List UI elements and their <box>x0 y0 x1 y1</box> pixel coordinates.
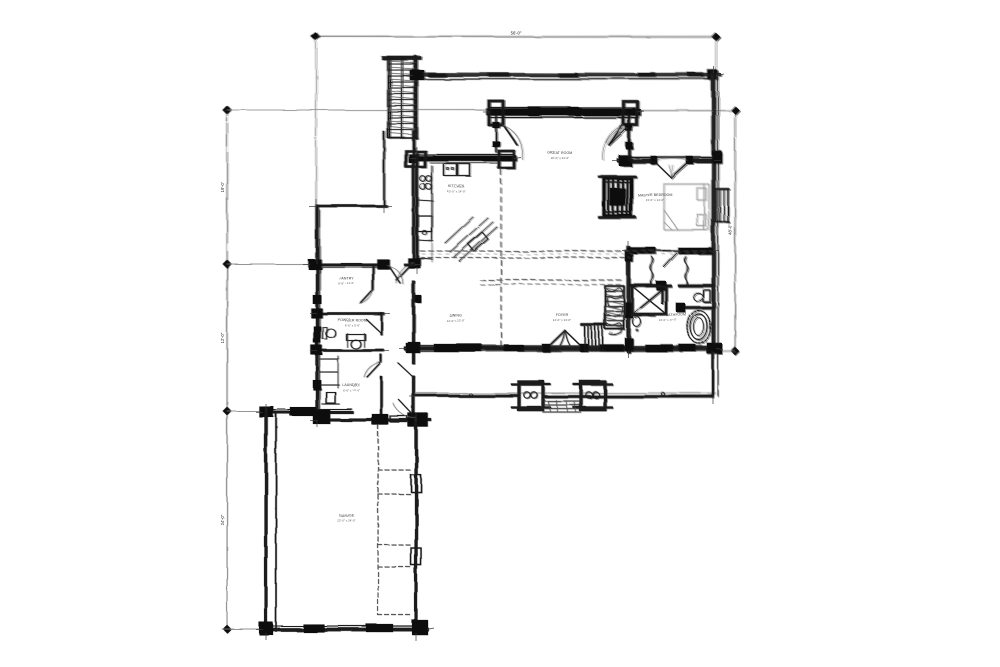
svg-text:MASTER BEDROOM: MASTER BEDROOM <box>637 193 672 197</box>
svg-text:DINING: DINING <box>450 314 463 318</box>
svg-text:13'-0" x 14'-0": 13'-0" x 14'-0" <box>646 198 665 202</box>
svg-text:POWDER ROOM: POWDER ROOM <box>338 318 367 322</box>
svg-text:14'-0" x 13'-0": 14'-0" x 13'-0" <box>447 319 466 323</box>
svg-text:12'-0": 12'-0" <box>220 332 225 343</box>
svg-text:13'-0" x 14'-0": 13'-0" x 14'-0" <box>447 189 466 193</box>
svg-text:13'-0" x 10'-0": 13'-0" x 10'-0" <box>659 318 678 322</box>
svg-text:KITCHEN: KITCHEN <box>448 184 464 188</box>
svg-text:4R: 4R <box>609 331 613 335</box>
svg-text:FOYER: FOYER <box>556 313 569 317</box>
svg-text:LAUNDRY: LAUNDRY <box>342 383 360 387</box>
svg-text:A/C: A/C <box>493 283 498 287</box>
svg-text:20'-0" x 24'-0": 20'-0" x 24'-0" <box>551 156 570 160</box>
svg-text:24'-0": 24'-0" <box>220 514 225 525</box>
svg-text:56'-0": 56'-0" <box>511 31 522 36</box>
svg-text:19'-0": 19'-0" <box>220 181 225 192</box>
svg-text:6'-6" x 5'-6": 6'-6" x 5'-6" <box>344 323 359 327</box>
svg-text:6'-6" x 11'-0": 6'-6" x 11'-0" <box>339 282 356 286</box>
svg-text:14'-0" x 13'-6": 14'-0" x 13'-6" <box>553 318 572 322</box>
svg-text:GREAT ROOM: GREAT ROOM <box>548 151 573 155</box>
svg-text:GARAGE: GARAGE <box>338 513 354 517</box>
svg-text:PANTRY: PANTRY <box>340 277 355 281</box>
svg-text:6'-6" x 10'-0": 6'-6" x 10'-0" <box>343 388 360 392</box>
svg-text:MASTER BATHROOM: MASTER BATHROOM <box>649 313 686 317</box>
svg-text:48'-0": 48'-0" <box>728 224 733 235</box>
svg-text:22'-0" x 24'-0": 22'-0" x 24'-0" <box>337 518 356 522</box>
